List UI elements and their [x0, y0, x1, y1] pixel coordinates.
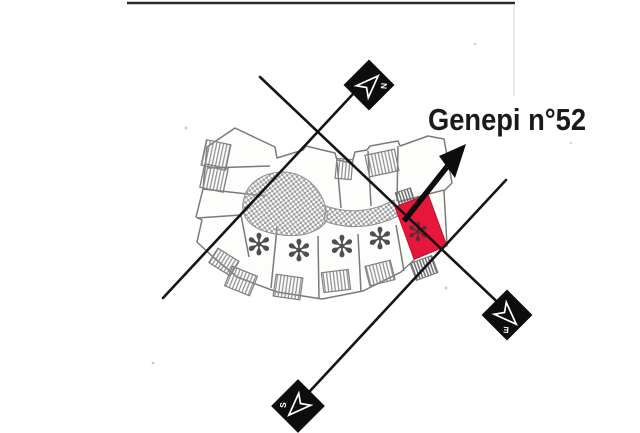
compass-east-marker: E — [482, 290, 533, 341]
apartment-label: Genepi n°52 — [428, 102, 586, 137]
balcony — [200, 164, 228, 192]
scan-speck — [445, 287, 448, 290]
unit-asterisk: ✻ — [367, 222, 392, 257]
site-plan-map: ✻ ✻ ✻ ✻ ✻ N E S — [0, 0, 640, 433]
compass-letter-north: N — [379, 82, 389, 89]
scanned-site-plan-page: ✻ ✻ ✻ ✻ ✻ N E S — [0, 0, 640, 433]
scan-speck — [474, 43, 476, 45]
balcony — [321, 269, 350, 292]
unit-asterisk: ✻ — [246, 228, 271, 263]
scan-speck — [185, 127, 188, 130]
building-plan — [196, 128, 452, 300]
compass-south-marker: S — [271, 379, 325, 433]
scan-speck — [570, 142, 572, 144]
unit-asterisk: ✻ — [286, 234, 311, 269]
scan-speck — [152, 362, 155, 365]
compass-north-marker: N — [344, 60, 395, 111]
balcony — [273, 274, 303, 300]
unit-asterisk: ✻ — [329, 230, 354, 265]
